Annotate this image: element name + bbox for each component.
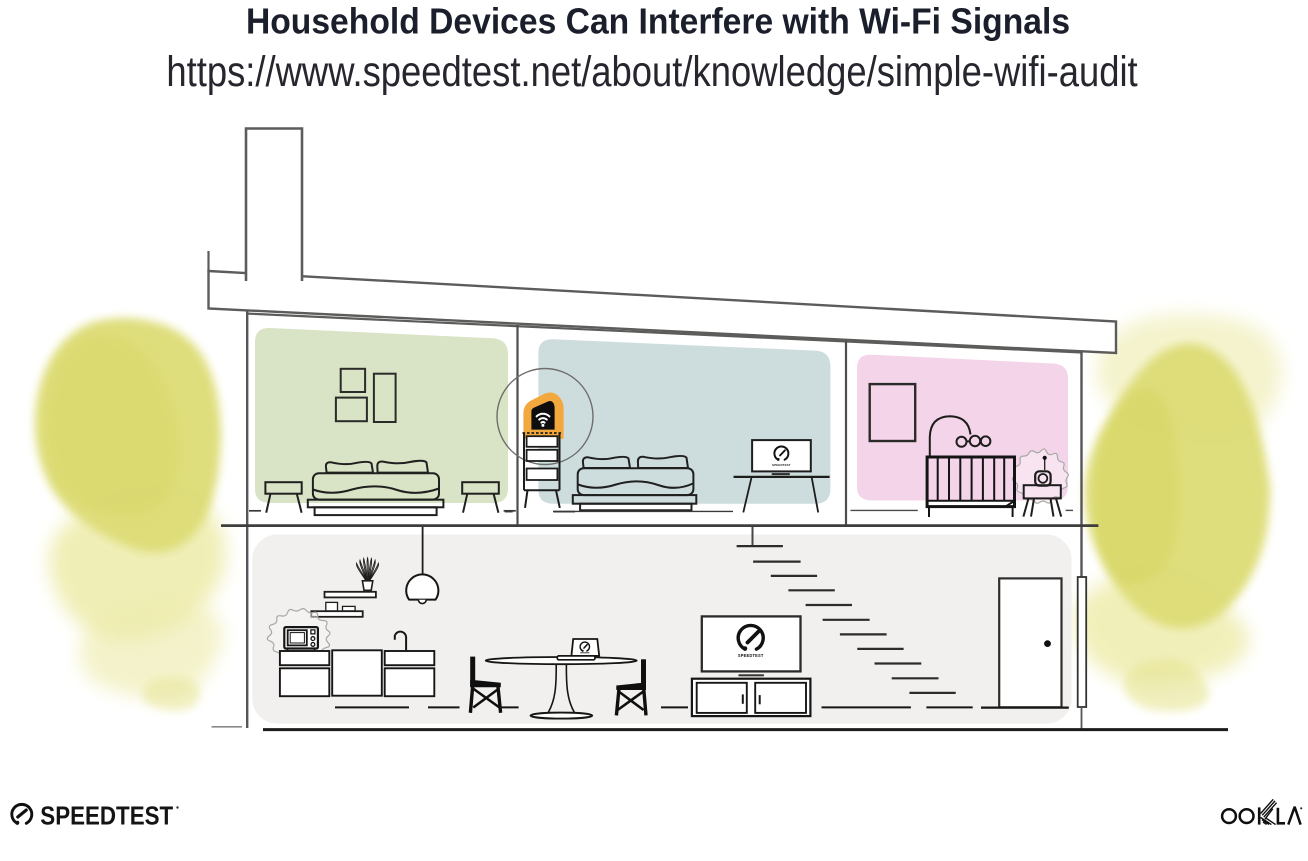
svg-text:SPEEDTEST: SPEEDTEST (738, 653, 764, 658)
svg-text:Household Devices Can Interfer: Household Devices Can Interfere with Wi-… (246, 1, 1070, 42)
svg-text:https://www.speedtest.net/abou: https://www.speedtest.net/about/knowledg… (166, 48, 1137, 95)
svg-text:SPEEDTEST: SPEEDTEST (40, 802, 173, 831)
svg-text:SPEEDTEST: SPEEDTEST (772, 463, 791, 467)
